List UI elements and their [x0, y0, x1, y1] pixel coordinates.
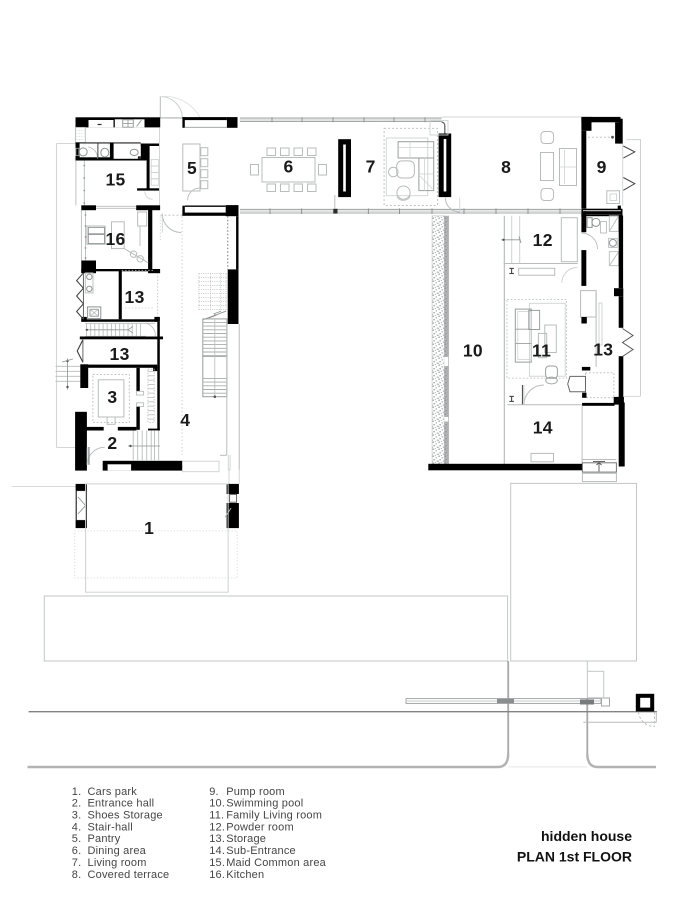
- svg-text:4.: 4.: [72, 821, 82, 833]
- svg-text:12.: 12.: [209, 821, 225, 833]
- svg-text:PLAN 1st FLOOR: PLAN 1st FLOOR: [517, 848, 632, 864]
- svg-text:2.: 2.: [72, 798, 82, 810]
- svg-text:13: 13: [125, 287, 145, 307]
- svg-text:14: 14: [533, 418, 553, 438]
- svg-text:10.: 10.: [209, 798, 225, 810]
- svg-text:Swimming pool: Swimming pool: [226, 798, 303, 810]
- svg-text:Powder room: Powder room: [226, 821, 294, 833]
- svg-text:5: 5: [187, 158, 197, 178]
- svg-text:9.: 9.: [209, 786, 219, 798]
- svg-text:3.: 3.: [72, 810, 82, 822]
- svg-text:6.: 6.: [72, 845, 82, 857]
- svg-text:11: 11: [532, 341, 551, 361]
- svg-text:5.: 5.: [72, 833, 82, 845]
- svg-text:7.: 7.: [72, 857, 82, 869]
- svg-text:13.: 13.: [209, 833, 225, 845]
- svg-text:8.: 8.: [72, 869, 82, 881]
- svg-text:Storage: Storage: [226, 833, 266, 845]
- svg-text:1: 1: [144, 518, 154, 538]
- svg-text:7: 7: [366, 157, 376, 177]
- svg-text:15: 15: [105, 169, 125, 189]
- svg-text:16.: 16.: [209, 869, 225, 881]
- svg-text:Pantry: Pantry: [88, 833, 121, 845]
- svg-text:6: 6: [283, 157, 293, 177]
- svg-text:11.: 11.: [209, 810, 224, 822]
- svg-text:Kitchen: Kitchen: [226, 869, 264, 881]
- svg-text:Entrance hall: Entrance hall: [88, 798, 155, 810]
- svg-text:Maid Common area: Maid Common area: [226, 857, 326, 869]
- svg-text:Sub-Entrance: Sub-Entrance: [226, 845, 296, 857]
- svg-text:14.: 14.: [209, 845, 225, 857]
- svg-text:Pump room: Pump room: [226, 786, 285, 798]
- svg-text:Shoes Storage: Shoes Storage: [88, 810, 163, 822]
- svg-text:8: 8: [501, 157, 511, 177]
- svg-text:12: 12: [533, 230, 553, 250]
- svg-text:hidden house: hidden house: [541, 828, 632, 844]
- svg-text:10: 10: [463, 340, 483, 360]
- svg-text:Covered terrace: Covered terrace: [88, 869, 170, 881]
- svg-text:Stair-hall: Stair-hall: [88, 821, 133, 833]
- svg-text:13: 13: [593, 339, 613, 359]
- svg-text:16: 16: [105, 229, 125, 249]
- svg-text:1.: 1.: [72, 786, 82, 798]
- svg-text:Living room: Living room: [88, 857, 147, 869]
- svg-text:Family Living room: Family Living room: [226, 810, 322, 822]
- svg-text:13: 13: [110, 344, 130, 364]
- svg-text:Cars park: Cars park: [88, 786, 138, 798]
- svg-text:2: 2: [107, 433, 117, 453]
- svg-text:3: 3: [107, 387, 117, 407]
- svg-text:15.: 15.: [209, 857, 225, 869]
- svg-text:4: 4: [180, 410, 190, 430]
- svg-text:9: 9: [597, 157, 607, 177]
- svg-text:Dining area: Dining area: [88, 845, 147, 857]
